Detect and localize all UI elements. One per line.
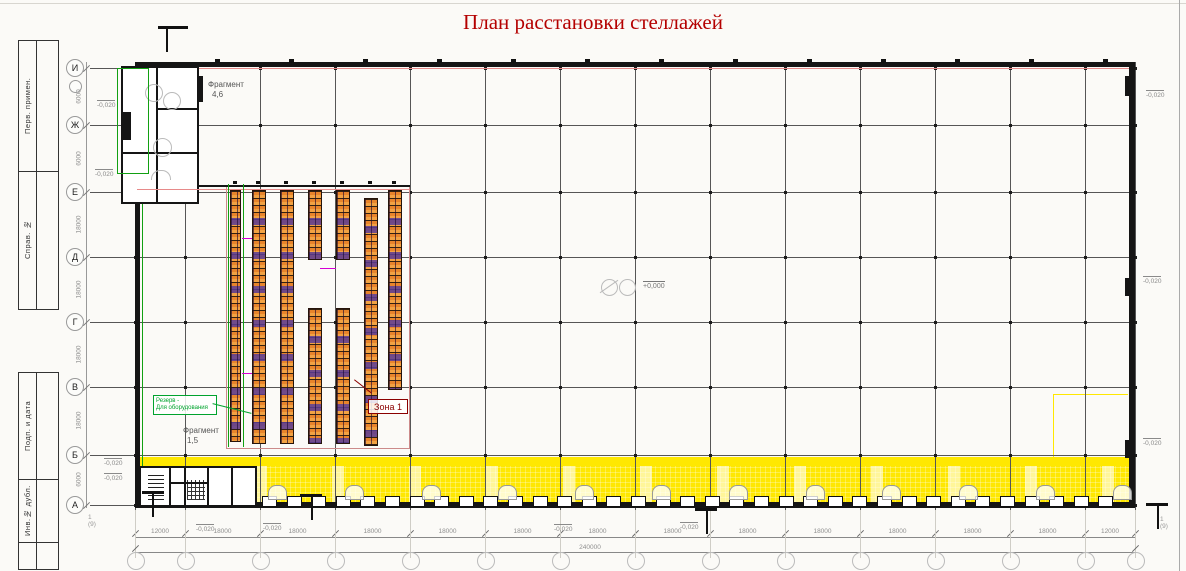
grid-intersection-dot [184,256,187,259]
row-grid-bubble: Д [66,248,84,266]
dim-extension-line [635,510,636,558]
wall-tick [807,59,812,63]
row-grid-bubble: А [66,496,84,514]
rack-top-tick [284,181,288,184]
dock-door [754,496,769,507]
dim-extension-line [485,510,486,558]
grid-intersection-dot [559,256,562,259]
office-wall [169,482,209,484]
elevation-label: -0,020 [1146,90,1164,99]
grid-intersection-dot [934,386,937,389]
dock-door [1074,496,1089,507]
dim-label-bay: 18000 [433,528,463,535]
drawing-title: План расстановки стеллажей [0,10,1186,35]
row-grid-bubble: Е [66,183,84,201]
fragment-bottom-number: 1,5 [187,436,219,446]
grid-intersection-dot [259,454,262,457]
fragment-top-label: Фрагмент 4,6 [208,80,244,100]
section-mark-stem [166,26,168,52]
wall-tick [955,59,960,63]
grid-intersection-dot [709,321,712,324]
column-grid-bubble [1077,552,1095,570]
grid-intersection-dot [484,124,487,127]
rack-top-tick [340,181,344,184]
grid-intersection-dot [709,191,712,194]
grid-intersection-dot [259,124,262,127]
dock-door [459,496,474,507]
grid-intersection-dot [784,454,787,457]
grid-intersection-dot [859,191,862,194]
grid-intersection-dot [559,191,562,194]
elevation-label: -0,020 [680,522,698,531]
grid-intersection-dot [184,386,187,389]
dim-line [86,62,87,508]
grid-intersection-dot [634,191,637,194]
grid-intersection-dot [634,386,637,389]
grid-intersection-dot [409,124,412,127]
elevation-zero-label: +0,000 [643,281,665,290]
grid-line-vertical [710,62,711,510]
grid-intersection-dot [634,321,637,324]
frame-cell-inv-dubl: Инв.№ дубл. [19,479,36,542]
row-grid-bubble: И [66,59,84,77]
grid-intersection-dot [859,321,862,324]
grid-intersection-dot [1084,454,1087,457]
dim-label-bay-left: 6000 [76,465,83,495]
grid-intersection-dot [1009,386,1012,389]
office-block-bottom [139,466,257,507]
grid-intersection-dot [334,124,337,127]
wall-top [135,62,1135,67]
fragment-top-text: Фрагмент [208,80,244,90]
dim-extension-line [710,510,711,558]
dim-extension-line [185,510,186,558]
column-grid-bubble [627,552,645,570]
reserve-line1: Резерв - [156,398,214,405]
rack-column [308,190,322,260]
dim-extension-line [260,510,261,558]
rack-column [230,190,241,442]
dock-leveler [422,485,441,500]
dock-door [606,496,621,507]
column-grid-bubble [552,552,570,570]
frame-cell-perv-primen: Перв. примен. [19,41,36,171]
dim-label-bay: 18000 [358,528,388,535]
grid-line-horizontal [90,125,1135,126]
frame-strip-bottom: Подп. и дата Инв.№ дубл. [18,372,59,570]
dock-door [1098,496,1113,507]
wall-tick [289,59,294,63]
dim-label-bay: 18000 [583,528,613,535]
dim-label-total: 240000 [555,544,625,551]
frame-cell-podp-data: Подп. и дата [19,373,36,479]
dim-label-bay-left: 6000 [76,81,83,111]
sheet-border-right [1179,0,1180,571]
rack-zone-redline [137,189,410,190]
dock-leveler [806,485,825,500]
grid-intersection-dot [484,256,487,259]
grid-intersection-dot [1084,321,1087,324]
dock-leveler [575,485,594,500]
rack-column [252,190,266,444]
rack-top-tick [392,181,396,184]
grid-intersection-dot [1009,124,1012,127]
dock-door [705,496,720,507]
column-grid-bubble [852,552,870,570]
rack-column [388,190,402,390]
rack-column [336,190,350,260]
grid-intersection-dot [859,124,862,127]
room-number-circle [163,92,181,110]
elevation-label: -0,020 [1143,438,1161,447]
office-wall [169,468,171,505]
office-wall [184,468,186,505]
rack-top-tick [368,181,372,184]
grid-line-vertical [935,62,936,510]
elevation-label: -0,020 [1143,276,1161,285]
dim-extension-line [1010,510,1011,558]
grid-intersection-dot [934,191,937,194]
grid-intersection-dot [184,454,187,457]
dock-door [1000,496,1015,507]
right-wall-door-block [1125,440,1134,458]
right-wall-door-block [1125,278,1134,296]
grid-line-vertical [1010,62,1011,510]
stair-symbol [148,472,164,500]
yellow-zone-outline [1053,394,1128,457]
reserve-line2: Для оборудования [156,405,214,412]
grid-intersection-dot [934,454,937,457]
dock-leveler [498,485,517,500]
section-circle [619,279,636,296]
dock-leveler [268,485,287,500]
wall-top-redline [135,68,1135,69]
grid-intersection-dot [1084,386,1087,389]
zone1-label: Зона 1 [368,399,408,414]
dim-label-bay: 12000 [145,528,175,535]
grid-intersection-dot [709,124,712,127]
dim-extension-line [135,510,136,558]
column-grid-bubble [327,552,345,570]
grid-intersection-dot [184,321,187,324]
grid-intersection-dot [784,124,787,127]
grid-intersection-dot [634,124,637,127]
grid-intersection-dot [484,191,487,194]
grid-intersection-dot [634,454,637,457]
column-grid-bubble [927,552,945,570]
strip-divider [36,373,37,569]
wall-tick [437,59,442,63]
dock-leveler [729,485,748,500]
dim-label-bay: 18000 [1033,528,1063,535]
grid-intersection-dot [1009,454,1012,457]
grid-intersection-dot [484,321,487,324]
dock-leveler [345,485,364,500]
door-arc [151,170,171,180]
grid-line-vertical [560,62,561,510]
elevation-label: -0,020 [104,458,122,467]
column-grid-bubble [1127,552,1145,570]
grid-intersection-dot [859,256,862,259]
dim-extension-line [785,510,786,558]
dim-label-bay: 18000 [958,528,988,535]
dock-door [828,496,843,507]
column-grid-bubble [702,552,720,570]
dock-door [852,496,867,507]
grid-intersection-dot [784,321,787,324]
dock-leveler [959,485,978,500]
section-ref-label: 1 (9) [88,514,96,528]
section-mark-stem [1157,503,1159,529]
dim-label-bay-left: 18000 [76,339,83,369]
wall-tick [733,59,738,63]
dim-label-bay: 18000 [508,528,538,535]
wall-tick [659,59,664,63]
wall-tick [585,59,590,63]
fragment-bottom-label: Фрагмент 1,5 [183,426,219,446]
magenta-connector [242,373,252,374]
section-mark-stem [311,494,313,520]
grid-line-vertical [1085,62,1086,510]
dim-label-bay: 18000 [283,528,313,535]
section-ref-label: 1 (9) [1160,516,1168,530]
dim-extension-line [410,510,411,558]
elevation-label: -0,020 [554,524,572,533]
grid-line-vertical [785,62,786,510]
strip-divider [36,41,37,309]
column-grid-bubble [402,552,420,570]
grid-intersection-dot [784,386,787,389]
column-grid-bubble [252,552,270,570]
dim-label-bay-left: 18000 [76,274,83,304]
grid-intersection-dot [484,454,487,457]
dim-extension-line [1085,510,1086,558]
dock-door [631,496,646,507]
grid-intersection-dot [709,386,712,389]
row-grid-bubble: Ж [66,116,84,134]
magenta-connector [320,268,336,269]
right-wall-door-block [1125,76,1134,96]
dock-door [926,496,941,507]
column-grid-bubble [127,552,145,570]
reserve-label-box: Резерв - Для оборудования [153,395,217,415]
grid-intersection-dot [1084,256,1087,259]
dim-label-bay: 18000 [808,528,838,535]
dim-extension-line [935,510,936,558]
fragment-bottom-text: Фрагмент [183,426,219,436]
dock-leveler [652,485,671,500]
dock-door [385,496,400,507]
rack-green-line [243,184,244,447]
column-grid-bubble [777,552,795,570]
wall-tick [363,59,368,63]
dock-leveler [1113,485,1132,500]
section-mark-bar [158,26,188,29]
rack-top-tick [312,181,316,184]
dim-label-bay: 18000 [883,528,913,535]
grid-intersection-dot [559,124,562,127]
dim-label-bay-left: 18000 [76,406,83,436]
wall-tick [1103,59,1108,63]
grid-intersection-dot [1009,256,1012,259]
grid-intersection-dot [859,454,862,457]
grid-intersection-dot [784,191,787,194]
sheet-border-top [0,3,1186,4]
dim-extension-line [335,510,336,558]
frame-cell-sprav-no: Справ. № [19,171,36,309]
row-grid-bubble: В [66,378,84,396]
grid-intersection-dot [934,124,937,127]
row-grid-bubble: Г [66,313,84,331]
strip-divider [19,542,58,543]
dock-door [311,496,326,507]
dim-label-bay-left: 18000 [76,209,83,239]
frame-strip-top: Перв. примен. Справ. № [18,40,59,310]
grid-intersection-dot [934,321,937,324]
dock-leveler [882,485,901,500]
office-wall [231,468,233,505]
elevation-label: -0,020 [196,524,214,533]
dock-leveler [1036,485,1055,500]
dim-extension-line [1135,510,1136,558]
grid-intersection-dot [559,454,562,457]
dim-label-bay-left: 6000 [76,143,83,173]
dim-label-bay: 18000 [733,528,763,535]
grid-line-vertical [860,62,861,510]
grid-intersection-dot [859,386,862,389]
grid-intersection-dot [1084,191,1087,194]
wall-tick [881,59,886,63]
fragment-top-marker [199,76,203,102]
dim-label-bay: 12000 [1095,528,1125,535]
grid-intersection-dot [334,454,337,457]
dock-door [557,496,572,507]
grid-line-vertical [410,62,411,510]
drawing-sheet: План расстановки стеллажей Перв. примен.… [0,0,1186,571]
wall-tick [1029,59,1034,63]
grid-line-vertical [1135,62,1136,510]
elevation-label: -0,020 [97,100,115,109]
room-number-circle [153,138,172,157]
elevation-label: -0,020 [263,523,281,532]
magenta-connector [242,238,252,239]
grid-intersection-dot [784,256,787,259]
rack-zone-top-line [198,185,410,187]
section-mark-stem [706,508,708,534]
dock-door [533,496,548,507]
grid-intersection-dot [1009,321,1012,324]
rack-top-tick [233,181,237,184]
dock-door [680,496,695,507]
rack-column [308,308,322,444]
rack-column [280,190,294,444]
grid-intersection-dot [709,256,712,259]
grid-intersection-dot [484,386,487,389]
dock-door [483,496,498,507]
column-grid-bubble [1002,552,1020,570]
wall-tick [511,59,516,63]
section-mark-stem [152,491,154,517]
grid-intersection-dot [709,454,712,457]
grid-intersection-dot [934,256,937,259]
row-grid-bubble: Б [66,446,84,464]
office-wall [207,468,209,505]
rack-column [336,308,350,444]
elevation-label: -0,020 [104,473,122,482]
grid-intersection-dot [1009,191,1012,194]
dock-door [902,496,917,507]
office-green-outline [117,68,149,174]
grid-intersection-dot [559,386,562,389]
dock-door [779,496,794,507]
grid-intersection-dot [634,256,637,259]
grid-line-vertical [485,62,486,510]
fragment-top-number: 4,6 [212,90,244,100]
column-grid-bubble [477,552,495,570]
rack-top-tick [256,181,260,184]
grid-intersection-dot [409,454,412,457]
grid-line-horizontal [90,455,1135,456]
dock-door [287,496,302,507]
column-grid-bubble [177,552,195,570]
elevation-label: -0,020 [95,169,113,178]
grid-intersection-dot [1084,124,1087,127]
wall-tick [215,59,220,63]
grid-intersection-dot [559,321,562,324]
dim-extension-line [860,510,861,558]
